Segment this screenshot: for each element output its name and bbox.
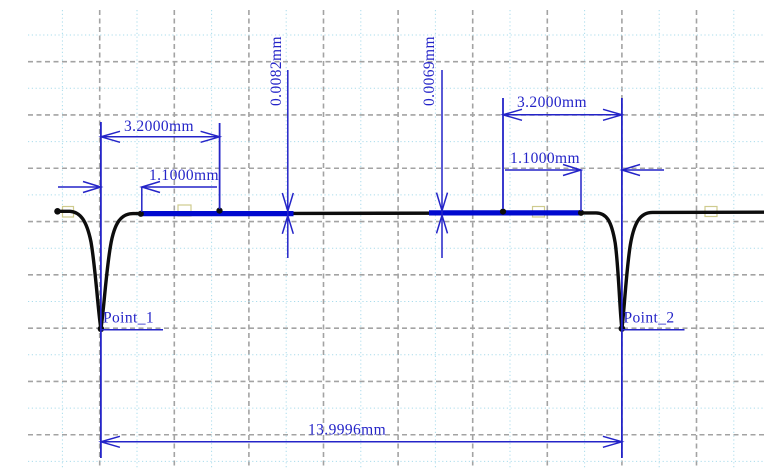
dimension-0_0069mm[interactable]: 0.0069mm [421, 36, 448, 258]
measurement-plot: 3.2000mm 1.1000mm 0.0082mm 0.0069mm 3.20… [0, 0, 764, 469]
point-label[interactable]: Point_1 [103, 310, 154, 327]
point-marker[interactable] [54, 208, 61, 215]
profile-plot-canvas: 3.2000mm 1.1000mm 0.0082mm 0.0069mm 3.20… [0, 0, 764, 469]
dimension-label[interactable]: 1.1000mm [510, 150, 580, 167]
dimension-label[interactable]: 3.2000mm [517, 94, 587, 111]
dimension-label[interactable]: 0.0069mm [421, 36, 438, 106]
dimension-1_1mm-left[interactable]: 1.1000mm [58, 167, 219, 212]
point-marker[interactable] [500, 209, 506, 215]
point-label[interactable]: Point_2 [624, 310, 675, 327]
dimension-label[interactable]: 3.2000mm [124, 118, 194, 135]
dimension-3_2mm-right[interactable]: 3.2000mm [503, 94, 622, 458]
dimension-label[interactable]: 13.9996mm [308, 422, 386, 439]
grid [28, 10, 764, 469]
dimension-label[interactable]: 0.0082mm [268, 36, 285, 106]
dimension-0_0082mm[interactable]: 0.0082mm [268, 36, 293, 258]
point-marker[interactable] [138, 211, 144, 217]
dimension-label[interactable]: 1.1000mm [149, 167, 219, 184]
point-label-1[interactable]: Point_1 [101, 310, 163, 330]
dimension-13_9996mm-total[interactable]: 13.9996mm [101, 422, 622, 448]
point-label-2[interactable]: Point_2 [622, 310, 685, 330]
